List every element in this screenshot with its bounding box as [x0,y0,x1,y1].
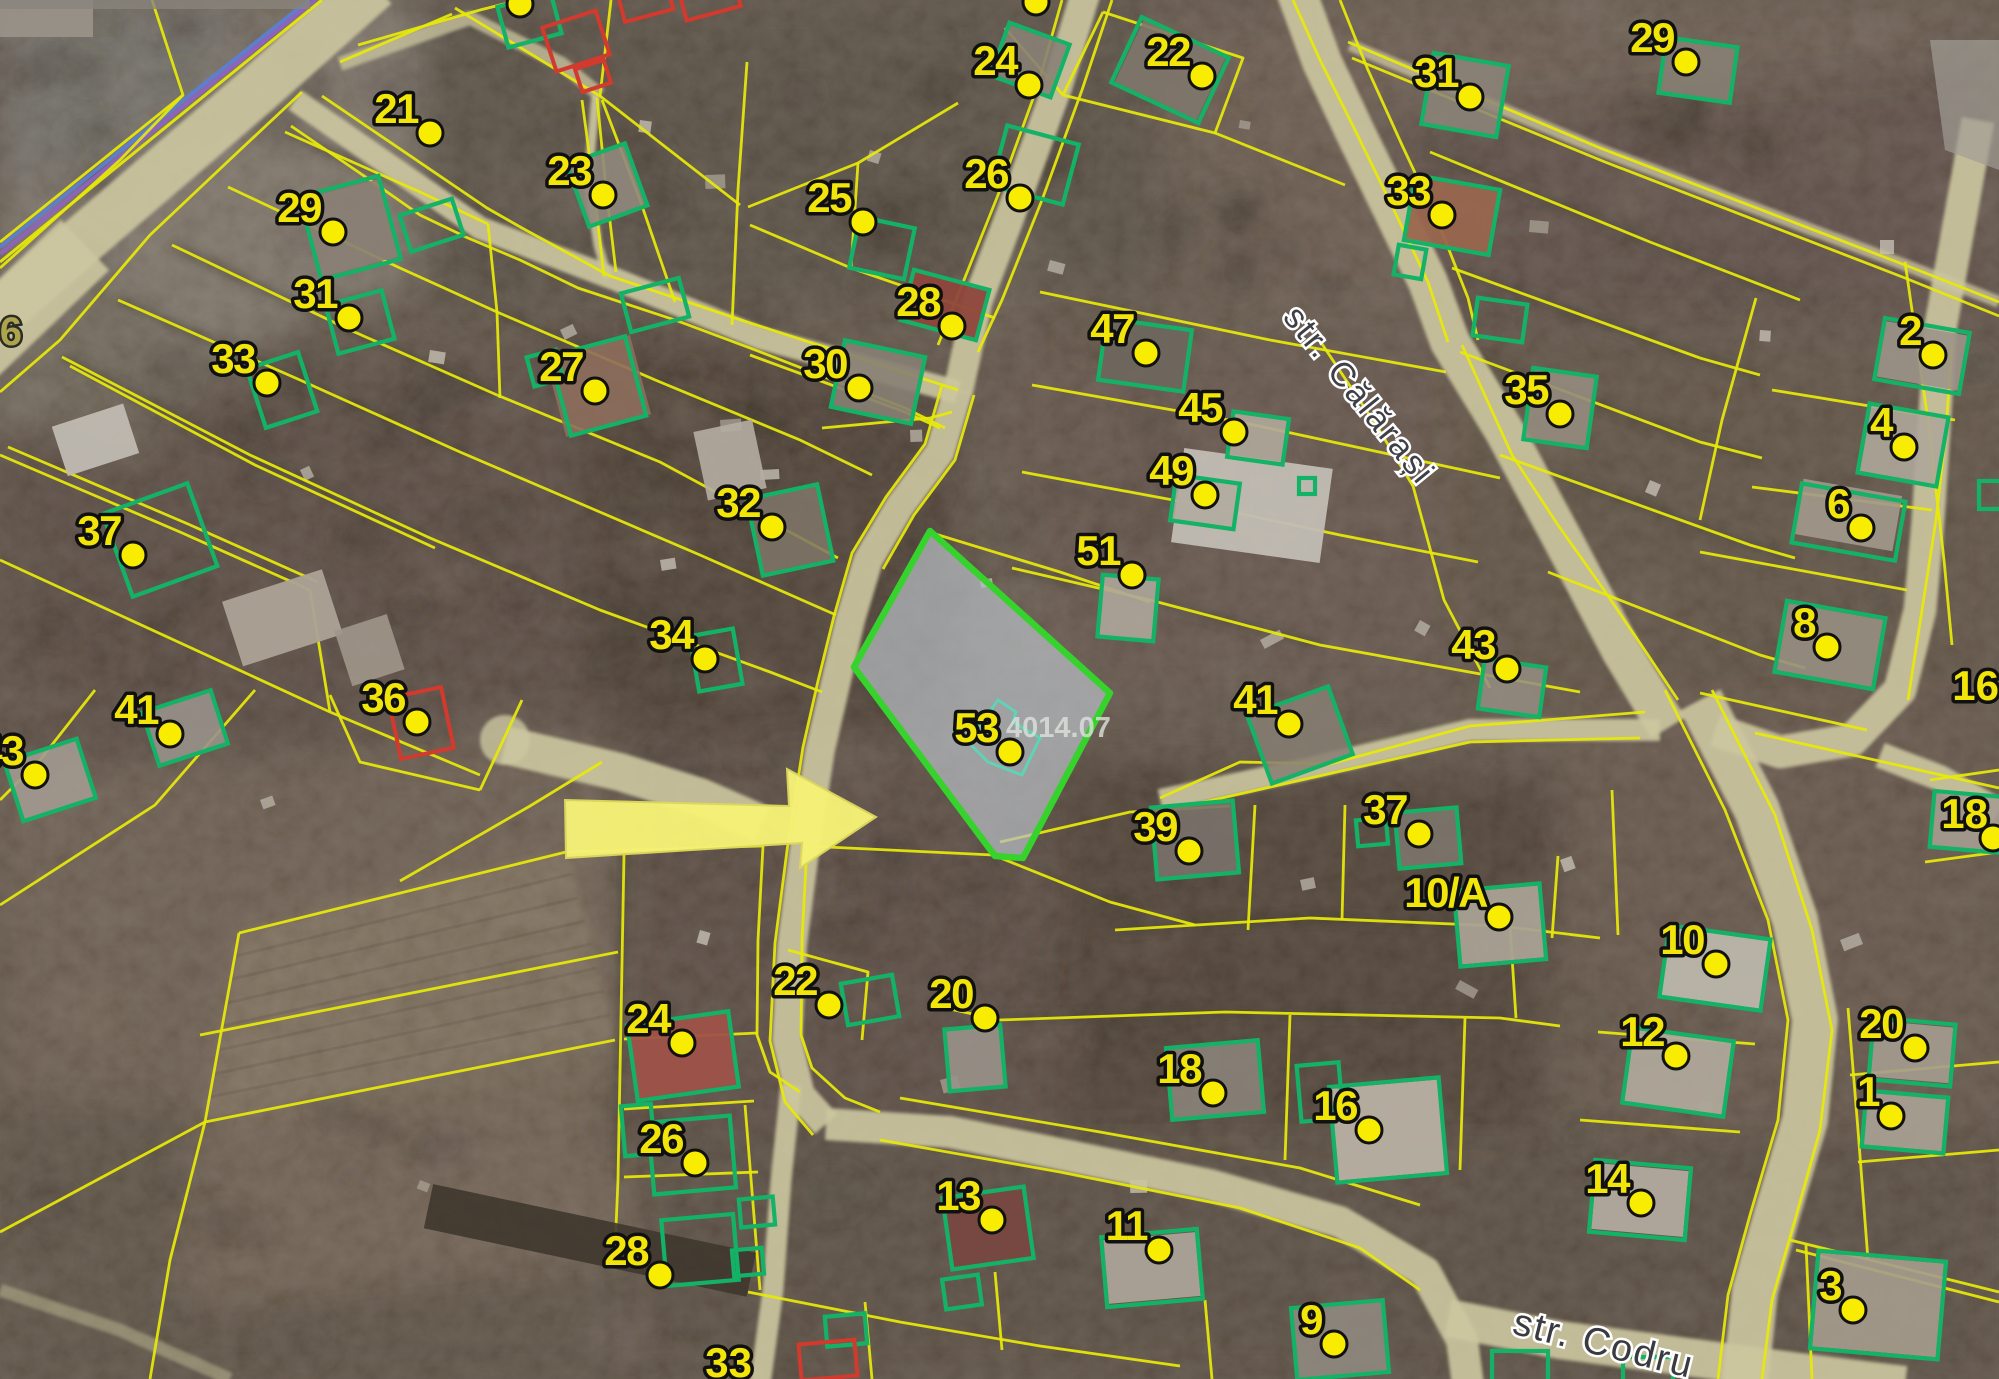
svg-text:20: 20 [929,970,973,1017]
svg-text:4014.07: 4014.07 [1006,712,1111,744]
svg-text:6: 6 [1827,480,1849,527]
svg-text:37: 37 [1363,786,1407,833]
svg-text:21: 21 [374,85,419,132]
svg-text:10: 10 [1660,916,1704,963]
svg-text:33: 33 [1386,167,1430,214]
svg-text:33: 33 [211,335,255,382]
svg-text:14: 14 [1585,1155,1631,1202]
svg-text:8: 8 [1793,599,1816,646]
svg-text:24: 24 [626,995,672,1042]
svg-text:49: 49 [1149,447,1193,494]
svg-text:39: 39 [1133,803,1177,850]
svg-text:45: 45 [1178,384,1223,431]
svg-text:27: 27 [539,343,583,390]
svg-text:28: 28 [604,1227,649,1274]
svg-text:23: 23 [547,147,591,194]
svg-text:22: 22 [1146,28,1190,75]
svg-text:31: 31 [293,270,338,317]
svg-text:10/A: 10/A [1404,869,1488,916]
svg-text:41: 41 [114,686,159,733]
svg-text:9: 9 [1300,1296,1322,1343]
svg-text:11: 11 [1106,1202,1149,1249]
svg-text:26: 26 [964,150,1008,197]
svg-text:4: 4 [1870,399,1894,446]
svg-text:20: 20 [1859,1000,1903,1047]
svg-text:26: 26 [639,1115,683,1162]
svg-text:29: 29 [277,184,321,231]
svg-text:2: 2 [1899,307,1921,354]
svg-text:24: 24 [973,37,1019,84]
svg-text:43: 43 [0,727,23,774]
svg-text:31: 31 [1414,49,1459,96]
svg-text:32: 32 [716,479,760,526]
svg-text:37: 37 [77,507,121,554]
svg-text:12: 12 [1620,1008,1664,1055]
svg-text:35: 35 [1504,366,1549,413]
svg-text:36: 36 [361,674,405,721]
svg-text:22: 22 [773,957,817,1004]
svg-text:16: 16 [1952,662,1999,709]
svg-text:41: 41 [1233,676,1278,723]
svg-text:28: 28 [896,278,941,325]
svg-text:25: 25 [807,174,852,221]
svg-text:1: 1 [1857,1068,1880,1115]
svg-text:30: 30 [803,340,847,387]
svg-text:43: 43 [1451,621,1495,668]
svg-text:6: 6 [0,310,22,354]
svg-text:13: 13 [936,1172,980,1219]
svg-text:29: 29 [1630,14,1674,61]
svg-text:53: 53 [954,704,998,751]
svg-text:33: 33 [705,1339,752,1379]
svg-text:18: 18 [1157,1045,1202,1092]
svg-text:16: 16 [1313,1082,1357,1129]
svg-text:51: 51 [1076,527,1121,574]
svg-text:34: 34 [649,611,695,658]
svg-text:47: 47 [1090,305,1134,352]
svg-text:3: 3 [1819,1262,1841,1309]
